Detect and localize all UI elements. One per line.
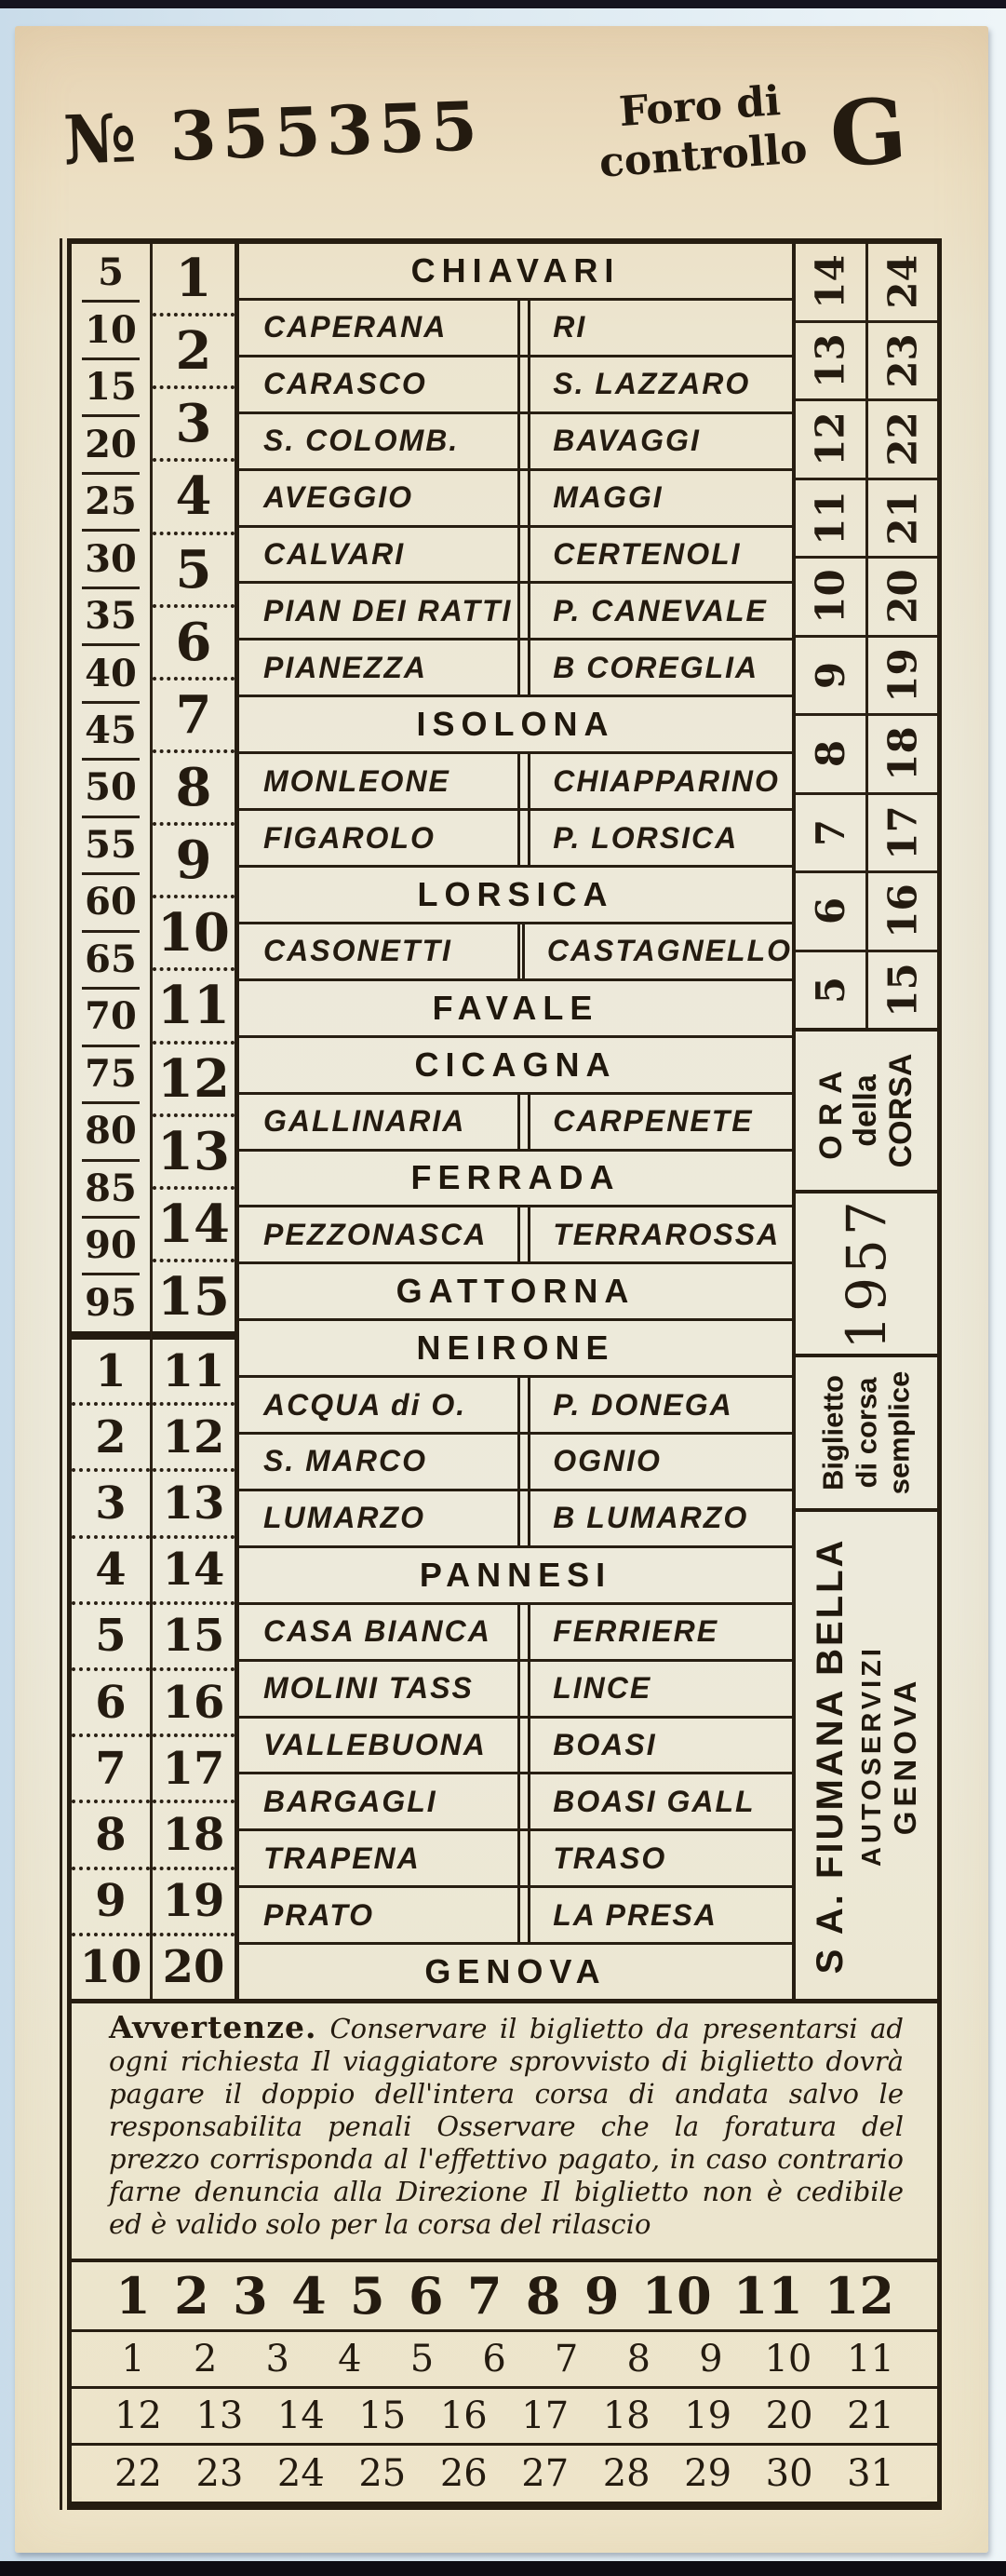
double-rule-divider: [517, 1831, 530, 1885]
station-name-left: MONLEONE: [239, 754, 517, 808]
date-number: 26: [440, 2452, 488, 2495]
ticket-paper: № 355355 Foro di controllo G 51015202530…: [15, 26, 988, 2553]
date-number: 12: [114, 2394, 162, 2437]
notice-body: Conservare il biglietto da presentarsi a…: [109, 2013, 904, 2240]
date-grid-row-2: 1234567891011: [72, 2332, 937, 2389]
fare-price-cell: 60: [72, 873, 150, 930]
date-number: 27: [521, 2452, 569, 2495]
ticket-type-box: Biglietto di corsa semplice: [796, 1357, 937, 1512]
double-rule-divider: [517, 528, 530, 582]
date-number: 17: [521, 2394, 569, 2437]
station-name-right: B COREGLIA: [530, 641, 792, 695]
date-number: 9: [692, 2338, 730, 2380]
date-number: 22: [114, 2452, 162, 2495]
station-header-name: CHIAVARI: [239, 244, 792, 298]
date-number: 6: [408, 2266, 445, 2326]
notice-section: Avvertenze.Conservare il biglietto da pr…: [72, 2003, 937, 2262]
trip-number-cell: 9: [153, 826, 235, 898]
date-grid-bold-row: 123456789101112: [72, 2262, 937, 2332]
station-name-right: BOASI GALL: [530, 1774, 792, 1828]
right-number-cell: 7: [796, 795, 865, 874]
trip-number-cell: 11: [153, 1340, 235, 1406]
trip-number-cell: 13: [153, 1117, 235, 1190]
fare-price-cell: 6: [72, 1671, 150, 1737]
fare-prices-lower: 12345678910: [72, 1340, 150, 1999]
station-name-left: TRAPENA: [239, 1831, 517, 1885]
fare-price-cell: 40: [72, 644, 150, 701]
fare-price-cell: 45: [72, 702, 150, 759]
ticket-type-line1: Biglietto: [817, 1371, 851, 1495]
year-value: 1957: [835, 1197, 898, 1350]
station-header-name: GATTORNA: [239, 1264, 792, 1318]
fare-price-cell: 35: [72, 587, 150, 644]
station-name-right: P. LORSICA: [530, 811, 792, 865]
trip-number-cell: 6: [153, 608, 235, 681]
station-row: S. COLOMB. BAVAGGI: [239, 414, 792, 471]
date-number: 19: [684, 2394, 731, 2437]
control-hole-label: Foro di controllo: [595, 76, 810, 189]
double-rule-divider: [517, 1888, 530, 1942]
scan-top-strip: [0, 0, 1006, 8]
station-row: ISOLONA: [239, 697, 792, 754]
right-number-cell: 6: [796, 873, 865, 952]
station-name-right: MAGGI: [530, 471, 792, 525]
station-name-right: TERRAROSSA: [530, 1207, 792, 1261]
station-name-left: PIANEZZA: [239, 641, 517, 695]
station-row: CASA BIANCA FERRIERE: [239, 1605, 792, 1662]
station-name-left: S. MARCO: [239, 1435, 517, 1489]
station-row: LUMARZO B LUMARZO: [239, 1491, 792, 1548]
double-rule-divider: [517, 414, 530, 468]
trip-number-cell: 14: [153, 1190, 235, 1262]
station-name-right: LINCE: [530, 1662, 792, 1716]
station-row: VALLEBUONA BOASI: [239, 1719, 792, 1775]
fare-price-cell: 70: [72, 988, 150, 1045]
company-box: S A. FIUMANA BELLA AUTOSERVIZI GENOVA: [796, 1512, 937, 1999]
year-box: 1957: [796, 1194, 937, 1357]
station-name-right: P. CANEVALE: [530, 584, 792, 638]
date-number: 28: [603, 2452, 651, 2495]
fare-table: 5101520253035404550556065707580859095 12…: [72, 244, 937, 2003]
date-number: 10: [764, 2338, 812, 2380]
trip-number-cell: 18: [153, 1803, 235, 1869]
station-name-left: CASA BIANCA: [239, 1605, 517, 1659]
right-number-cell: 14: [796, 244, 865, 323]
station-name-right: CARPENETE: [530, 1095, 792, 1149]
station-row: PIANEZZA B COREGLIA: [239, 641, 792, 697]
right-number-cell: 9: [796, 638, 865, 717]
trip-number-cell: 14: [153, 1539, 235, 1605]
fare-price-cell: 2: [72, 1406, 150, 1472]
double-rule-divider: [517, 1719, 530, 1773]
date-number: 11: [733, 2266, 803, 2326]
scan-bottom-strip: [0, 2561, 1006, 2576]
ticket-type-line3: semplice: [883, 1371, 917, 1495]
serial-digits: 355355: [168, 86, 484, 176]
station-header-name: PANNESI: [239, 1548, 792, 1602]
date-number: 11: [847, 2338, 894, 2380]
station-header-name: NEIRONE: [239, 1321, 792, 1375]
station-name-right: CERTENOLI: [530, 528, 792, 582]
station-row: CICAGNA: [239, 1038, 792, 1095]
station-row: CHIAVARI: [239, 244, 792, 301]
fare-price-cell: 10: [72, 1936, 150, 1999]
station-row: CASONETTI CASTAGNELLO: [239, 924, 792, 981]
company-name: S A. FIUMANA BELLA: [810, 1537, 852, 1974]
station-name-left: PRATO: [239, 1888, 517, 1942]
station-row: FAVALE: [239, 981, 792, 1038]
station-name-left: CASONETTI: [239, 924, 517, 978]
date-number: 4: [290, 2266, 328, 2326]
date-number: 15: [358, 2394, 406, 2437]
right-number-cell: 10: [796, 559, 865, 638]
right-number-cell: 8: [796, 716, 865, 795]
date-number: 6: [476, 2338, 513, 2380]
double-rule-divider: [517, 357, 530, 411]
fare-price-column: 5101520253035404550556065707580859095 12…: [72, 244, 153, 1999]
trip-number-column: 123456789101112131415 111213141516171819…: [153, 244, 239, 1999]
right-number-cell: 22: [868, 401, 938, 480]
station-name-right: LA PRESA: [530, 1888, 792, 1942]
station-header-name: LORSICA: [239, 868, 792, 922]
trip-number-cell: 1: [153, 244, 235, 317]
fare-price-cell: 9: [72, 1870, 150, 1936]
fare-price-cell: 10: [72, 301, 150, 357]
station-name-right: CASTAGNELLO: [525, 924, 792, 978]
right-numbers-outer: 24232221201918171615: [868, 244, 938, 1028]
fare-price-cell: 90: [72, 1217, 150, 1274]
station-name-right: CHIAPPARINO: [530, 754, 792, 808]
fare-price-cell: 30: [72, 530, 150, 587]
station-row: PIAN DEI RATTI P. CANEVALE: [239, 584, 792, 641]
fare-price-cell: 15: [72, 358, 150, 415]
fare-price-cell: 80: [72, 1102, 150, 1159]
station-header-name: ISOLONA: [239, 697, 792, 751]
date-number: 25: [358, 2452, 406, 2495]
station-row: ACQUA di O. P. DONEGA: [239, 1378, 792, 1435]
date-number: 2: [187, 2338, 224, 2380]
fare-price-cell: 7: [72, 1737, 150, 1803]
series-letter: G: [826, 77, 910, 187]
station-name-right: P. DONEGA: [530, 1378, 792, 1432]
date-number: 29: [684, 2452, 731, 2495]
right-panel: 141312111098765 24232221201918171615 ORA…: [796, 244, 937, 1999]
double-rule-divider: [517, 1662, 530, 1716]
fare-prices-upper: 5101520253035404550556065707580859095: [72, 244, 150, 1331]
section-divider-bar: [152, 1331, 235, 1340]
fare-price-cell: 1: [72, 1340, 150, 1406]
fare-price-cell: 4: [72, 1539, 150, 1605]
station-row: PEZZONASCA TERRAROSSA: [239, 1207, 792, 1264]
trip-number-cell: 13: [153, 1472, 235, 1538]
fare-price-cell: 5: [72, 244, 150, 301]
date-number: 8: [620, 2338, 657, 2380]
trip-numbers-lower: 11121314151617181920: [153, 1340, 235, 1999]
fare-price-cell: 55: [72, 816, 150, 873]
station-row: FIGAROLO P. LORSICA: [239, 811, 792, 868]
station-name-left: MOLINI TASS: [239, 1662, 517, 1716]
date-number: 14: [277, 2394, 325, 2437]
station-name-right: B LUMARZO: [530, 1491, 792, 1545]
date-number: 12: [825, 2266, 894, 2326]
station-name-right: OGNIO: [530, 1435, 792, 1489]
station-row: GATTORNA: [239, 1264, 792, 1321]
fare-price-cell: 20: [72, 415, 150, 472]
serial-number: № 355355: [62, 86, 485, 180]
trip-number-cell: 15: [153, 1605, 235, 1671]
station-row: TRAPENA TRASO: [239, 1831, 792, 1888]
station-row: MONLEONE CHIAPPARINO: [239, 754, 792, 811]
numero-sign: №: [62, 98, 140, 180]
double-rule-divider: [517, 641, 530, 695]
station-header-name: GENOVA: [239, 1945, 792, 1999]
right-number-cell: 12: [796, 401, 865, 480]
trip-number-cell: 17: [153, 1737, 235, 1803]
station-row: NEIRONE: [239, 1321, 792, 1378]
date-number: 31: [847, 2452, 894, 2495]
fare-price-cell: 85: [72, 1160, 150, 1217]
double-rule-divider: [517, 1491, 530, 1545]
ticket-header: № 355355 Foro di controllo G: [15, 26, 988, 238]
ora-label-line1: ORA: [814, 1054, 849, 1168]
trip-number-cell: 12: [153, 1045, 235, 1117]
station-row: AVEGGIO MAGGI: [239, 471, 792, 528]
date-number: 7: [466, 2266, 503, 2326]
trip-number-cell: 20: [153, 1936, 235, 1999]
right-number-cell: 13: [796, 323, 865, 402]
right-numbers-inner: 141312111098765: [796, 244, 868, 1028]
date-grid-row-3: 12131415161718192021: [72, 2389, 937, 2446]
right-number-cell: 23: [868, 323, 938, 402]
station-row: BARGAGLI BOASI GALL: [239, 1774, 792, 1831]
fare-price-cell: 65: [72, 931, 150, 988]
double-rule-divider: [517, 1095, 530, 1149]
station-name-right: RI: [530, 301, 792, 355]
ora-label-line3: CORSA: [884, 1054, 919, 1168]
double-rule-divider: [517, 811, 530, 865]
station-name-right: FERRIERE: [530, 1605, 792, 1659]
fare-price-cell: 75: [72, 1045, 150, 1102]
ticket-type-line2: di corsa: [850, 1371, 883, 1495]
double-rule-divider: [517, 1207, 530, 1261]
right-number-cell: 21: [868, 480, 938, 560]
station-name-right: BAVAGGI: [530, 414, 792, 468]
station-name-left: AVEGGIO: [239, 471, 517, 525]
station-row: PANNESI: [239, 1548, 792, 1605]
right-number-cell: 24: [868, 244, 938, 323]
trip-number-cell: 12: [153, 1406, 235, 1472]
station-row: CAPERANA RI: [239, 301, 792, 357]
date-number: 10: [642, 2266, 712, 2326]
right-number-cell: 11: [796, 480, 865, 560]
station-row: GENOVA: [239, 1945, 792, 1999]
trip-number-cell: 3: [153, 389, 235, 462]
station-header-name: FERRADA: [239, 1152, 792, 1206]
company-autoservizi: AUTOSERVIZI: [857, 1537, 888, 1974]
station-name-left: CARASCO: [239, 357, 517, 411]
trip-number-cell: 2: [153, 317, 235, 389]
date-number: 9: [583, 2266, 621, 2326]
trip-number-cell: 5: [153, 535, 235, 608]
scanned-bus-ticket-page: { "colors": { "paper": "#ece5cf", "ink":…: [0, 0, 1006, 2576]
ora-label-line2: della: [849, 1054, 883, 1168]
trip-number-cell: 15: [153, 1262, 235, 1331]
right-number-cell: 18: [868, 716, 938, 795]
right-number-cell: 20: [868, 559, 938, 638]
trip-number-cell: 8: [153, 753, 235, 826]
station-name-right: BOASI: [530, 1719, 792, 1773]
station-row: FERRADA: [239, 1152, 792, 1208]
station-name-left: BARGAGLI: [239, 1774, 517, 1828]
station-name-left: LUMARZO: [239, 1491, 517, 1545]
fare-price-cell: 95: [72, 1274, 150, 1330]
ticket-body-box: 5101520253035404550556065707580859095 12…: [67, 238, 942, 2510]
date-grid-row-4: 22232425262728293031: [72, 2446, 937, 2502]
station-row: GALLINARIA CARPENETE: [239, 1095, 792, 1152]
station-row: S. MARCO OGNIO: [239, 1435, 792, 1491]
station-row: CALVARI CERTENOLI: [239, 528, 792, 585]
date-number: 20: [766, 2394, 813, 2437]
trip-number-cell: 16: [153, 1671, 235, 1737]
double-rule-divider: [517, 471, 530, 525]
date-number: 1: [114, 2338, 152, 2380]
station-name-right: S. LAZZARO: [530, 357, 792, 411]
trip-number-cell: 7: [153, 681, 235, 753]
station-name-left: CALVARI: [239, 528, 517, 582]
station-header-name: FAVALE: [239, 981, 792, 1035]
station-row: CARASCO S. LAZZARO: [239, 357, 792, 414]
date-number: 21: [847, 2394, 894, 2437]
notice-title: Avvertenze.: [109, 2009, 329, 2045]
fare-price-cell: 50: [72, 759, 150, 816]
date-number: 2: [173, 2266, 210, 2326]
date-number: 18: [603, 2394, 651, 2437]
trip-number-cell: 19: [153, 1870, 235, 1936]
company-city: GENOVA: [888, 1537, 923, 1974]
date-number: 3: [259, 2338, 296, 2380]
station-name-right: TRASO: [530, 1831, 792, 1885]
station-list: CHIAVARI CAPERANA RI CARASCO S. LAZZARO: [239, 244, 796, 1999]
trip-number-cell: 11: [153, 971, 235, 1044]
double-rule-divider: [517, 1378, 530, 1432]
date-number: 7: [548, 2338, 585, 2380]
double-rule-divider: [517, 1605, 530, 1659]
double-rule-divider: [517, 1435, 530, 1489]
trip-numbers-upper: 123456789101112131415: [153, 244, 235, 1331]
right-number-columns: 141312111098765 24232221201918171615: [796, 244, 937, 1032]
date-number: 5: [349, 2266, 386, 2326]
station-row: PRATO LA PRESA: [239, 1888, 792, 1945]
trip-number-cell: 10: [153, 898, 235, 971]
station-name-left: VALLEBUONA: [239, 1719, 517, 1773]
right-number-cell: 5: [796, 952, 865, 1029]
station-name-left: PEZZONASCA: [239, 1207, 517, 1261]
station-name-left: S. COLOMB.: [239, 414, 517, 468]
station-name-left: FIGAROLO: [239, 811, 517, 865]
section-divider-bar: [71, 1331, 151, 1340]
station-name-left: CAPERANA: [239, 301, 517, 355]
station-header-name: CICAGNA: [239, 1038, 792, 1092]
trip-number-cell: 4: [153, 462, 235, 534]
double-rule-divider: [517, 924, 525, 978]
double-rule-divider: [517, 754, 530, 808]
date-number: 16: [440, 2394, 488, 2437]
double-rule-divider: [517, 301, 530, 355]
fare-price-cell: 5: [72, 1605, 150, 1671]
station-row: MOLINI TASS LINCE: [239, 1662, 792, 1719]
station-name-left: GALLINARIA: [239, 1095, 517, 1149]
date-number: 8: [525, 2266, 562, 2326]
right-number-cell: 15: [868, 952, 938, 1029]
date-number: 1: [114, 2266, 152, 2326]
date-number: 13: [195, 2394, 243, 2437]
date-number: 23: [195, 2452, 243, 2495]
right-number-cell: 17: [868, 795, 938, 874]
station-name-left: ACQUA di O.: [239, 1378, 517, 1432]
date-number: 5: [403, 2338, 440, 2380]
right-number-cell: 19: [868, 638, 938, 717]
date-number: 4: [331, 2338, 369, 2380]
double-rule-divider: [517, 1774, 530, 1828]
fare-price-cell: 3: [72, 1472, 150, 1538]
ora-della-corsa-box: ORA della CORSA: [796, 1032, 937, 1194]
fare-price-cell: 8: [72, 1803, 150, 1869]
date-number: 24: [277, 2452, 325, 2495]
station-name-left: PIAN DEI RATTI: [239, 584, 517, 638]
station-row: LORSICA: [239, 868, 792, 924]
date-number: 30: [766, 2452, 813, 2495]
date-number: 3: [232, 2266, 269, 2326]
right-number-cell: 16: [868, 873, 938, 952]
fare-price-cell: 25: [72, 473, 150, 530]
double-rule-divider: [517, 584, 530, 638]
